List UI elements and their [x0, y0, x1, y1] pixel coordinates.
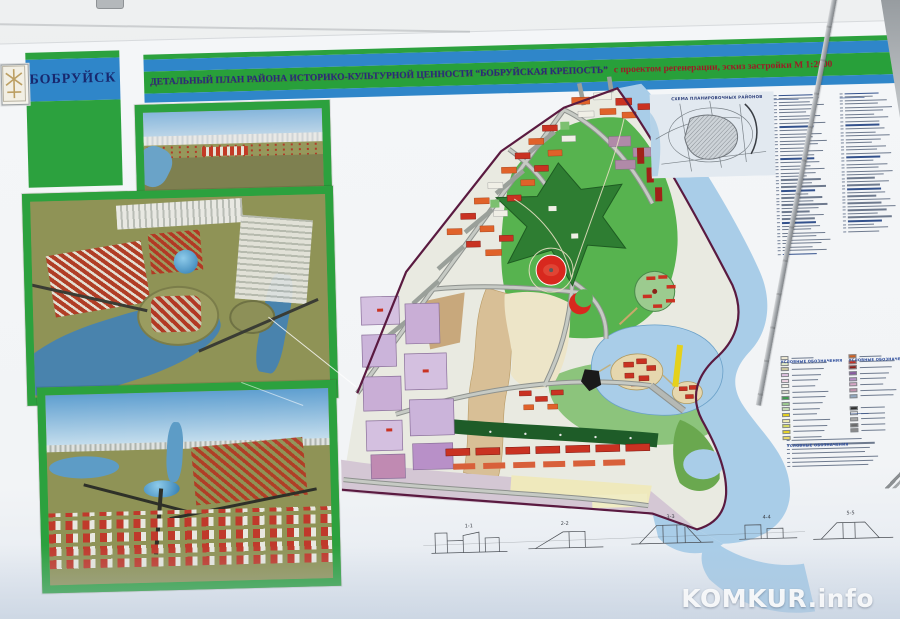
legend-line	[841, 131, 895, 134]
legend-line	[775, 132, 829, 135]
legend-line	[842, 198, 896, 201]
legend-line	[840, 92, 894, 95]
legend-line	[843, 208, 897, 211]
legend-line	[776, 182, 830, 185]
legend-line	[842, 184, 896, 187]
legend-line	[841, 159, 895, 162]
legend-line	[842, 187, 896, 190]
aerial-render-2	[22, 186, 338, 406]
legend-line	[774, 118, 828, 121]
legend-line	[841, 163, 895, 166]
planning-districts-inset: СХЕМА ПЛАНИРОВОЧНЫХ РАЙОНОВ	[649, 84, 775, 182]
legend-line	[776, 196, 830, 199]
legend-line	[840, 99, 894, 102]
legend-swatch-row	[849, 387, 900, 392]
legend-swatches: УСЛОВНЫЕ ОБОЗНАЧЕНИЯУСЛОВНЫЕ ОБОЗНАЧЕНИЯ	[780, 347, 900, 441]
legend-line	[775, 129, 829, 132]
legend-line	[777, 225, 831, 228]
legend-line	[774, 111, 828, 114]
legend-line	[842, 194, 896, 197]
legend-line	[842, 170, 896, 173]
legend-line	[775, 146, 829, 149]
thin-wire	[0, 23, 470, 32]
legend-line	[774, 104, 828, 107]
legend-line	[776, 189, 830, 192]
legend-line	[841, 152, 895, 155]
legend-line	[840, 106, 894, 109]
legend-line	[774, 122, 828, 125]
legend-line	[841, 141, 895, 144]
legend-line	[774, 125, 828, 128]
display-board: БОБРУЙСК ДЕТАЛЬНЫЙ ПЛАН РАЙОНА ИСТОРИКО-…	[0, 19, 900, 619]
coat-of-arms-icon	[1, 64, 30, 106]
legend-line	[775, 143, 829, 146]
legend-line	[774, 93, 828, 96]
legend-swatch-row	[849, 381, 900, 386]
legend-line	[842, 173, 896, 176]
legend-line	[841, 134, 895, 137]
legend-header: УСЛОВНЫЕ ОБОЗНАЧЕНИЯ	[781, 359, 843, 365]
city-name: БОБРУЙСК	[29, 70, 116, 88]
legend-swatch-row	[781, 395, 833, 400]
legend-line	[843, 215, 897, 218]
legend-line	[843, 226, 897, 229]
legend-swatch-row	[781, 383, 833, 388]
legend-line	[840, 102, 894, 105]
legend-column	[839, 83, 897, 256]
legend-line	[777, 228, 831, 231]
legend-line	[841, 145, 895, 148]
legend-line	[843, 223, 897, 226]
legend-line	[776, 193, 830, 196]
legend-line	[842, 177, 896, 180]
legend-line	[774, 108, 828, 111]
legend-line	[840, 109, 894, 112]
legend-line	[843, 230, 897, 233]
legend-line	[840, 116, 894, 119]
inset-map-drawing	[650, 91, 776, 178]
legend-line	[843, 212, 897, 215]
legend-line	[841, 148, 895, 151]
legend-line	[777, 217, 831, 220]
legend-swatch-row	[782, 400, 834, 405]
legend-swatch-row	[849, 364, 900, 369]
legend-line	[841, 138, 895, 141]
legend-line	[841, 127, 895, 130]
aerial-render-3	[37, 380, 341, 594]
legend-line	[777, 210, 831, 213]
wall-bracket	[96, 0, 124, 9]
legend-swatch-row	[781, 372, 833, 377]
legend-line	[777, 232, 831, 235]
legend-line	[776, 203, 830, 206]
photo-background: БОБРУЙСК ДЕТАЛЬНЫЙ ПЛАН РАЙОНА ИСТОРИКО-…	[0, 0, 900, 619]
legend-line	[775, 139, 829, 142]
legend-line	[777, 235, 831, 238]
legend-line	[774, 101, 828, 104]
legend-swatch-row	[782, 417, 834, 422]
section-label: 3-3	[666, 514, 674, 520]
legend-line	[842, 166, 896, 169]
legend-line	[777, 207, 831, 210]
legend-swatch-row	[849, 393, 900, 398]
legend-line	[842, 191, 896, 194]
legend-line	[841, 155, 895, 158]
city-logo-band: БОБРУЙСК	[25, 57, 120, 101]
legend-line	[774, 115, 828, 118]
legend-line	[776, 200, 830, 203]
logo-green-block	[27, 99, 123, 187]
legend-line	[775, 136, 829, 139]
legend-line	[842, 201, 896, 204]
legend-swatch-row	[782, 423, 834, 428]
legend-notes: УСЛОВНЫЕ ОБОЗНАЧЕНИЯ	[786, 431, 886, 470]
legend-line	[843, 219, 897, 222]
legend-line	[840, 120, 894, 123]
legend-line	[840, 113, 894, 116]
legend-line	[777, 214, 831, 217]
legend-line	[842, 180, 896, 183]
legend-swatch-row	[849, 370, 900, 375]
legend-swatch-row	[781, 366, 833, 371]
legend-swatch-row	[781, 378, 833, 383]
legend-line	[777, 221, 831, 224]
legend-swatch-row	[782, 406, 834, 411]
legend-swatch-row	[781, 389, 833, 394]
map-legend: УСЛОВНЫЕ ОБОЗНАЧЕНИЯУСЛОВНЫЕ ОБОЗНАЧЕНИЯ…	[773, 79, 900, 568]
legend-line	[840, 123, 894, 126]
legend-line	[776, 185, 830, 188]
legend-swatch-row	[849, 376, 900, 381]
section-label: 4-4	[763, 514, 771, 520]
section-label: 2-2	[561, 521, 569, 527]
legend-line	[843, 205, 897, 208]
watermark-text: KOMKUR.info	[681, 584, 874, 613]
legend-swatch-row	[782, 412, 834, 417]
designer-stamp	[884, 471, 900, 489]
section-label: 1-1	[465, 523, 473, 529]
